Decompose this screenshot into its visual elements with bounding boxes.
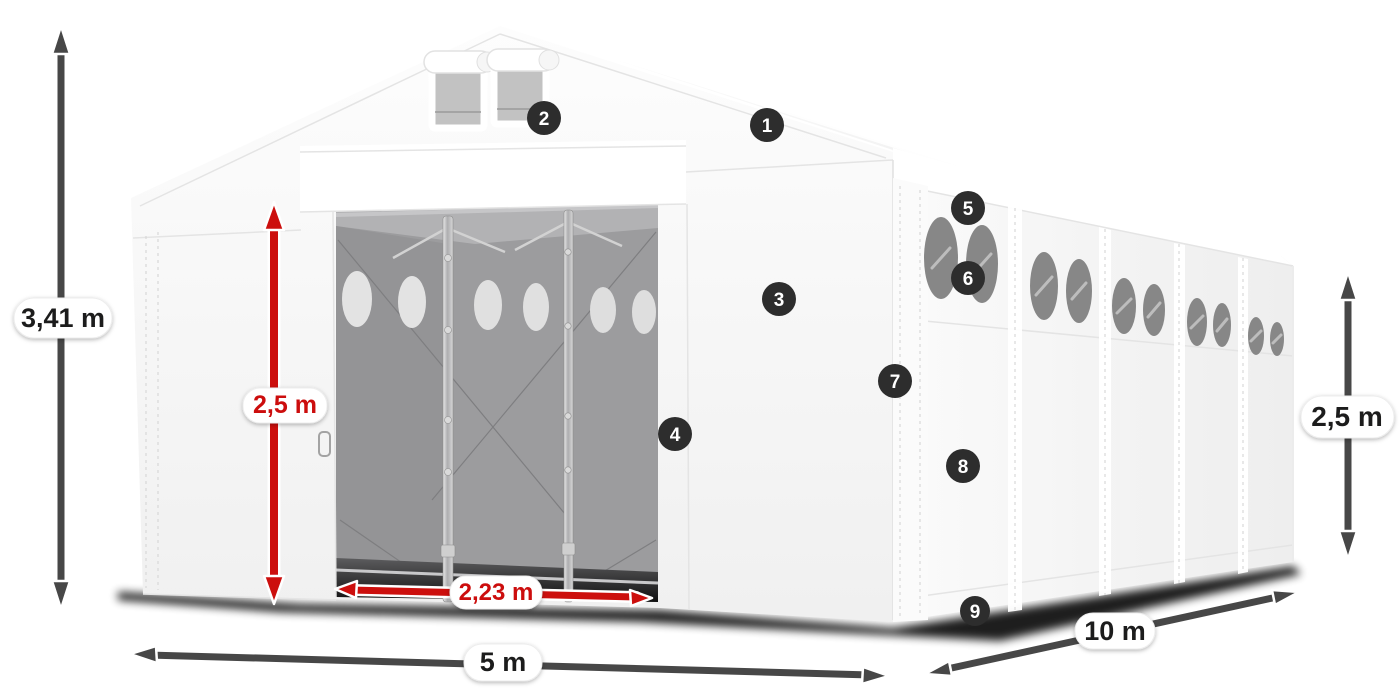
interior-window xyxy=(632,290,656,334)
marker-2-label: 2 xyxy=(539,109,550,130)
dimension-label-total-height: 3,41 m xyxy=(14,298,112,338)
dimension-label-side-length: 10 m xyxy=(1075,613,1155,649)
marker-3[interactable]: 3 xyxy=(762,282,796,316)
marker-7-label: 7 xyxy=(890,372,901,393)
side-strap xyxy=(1238,257,1248,574)
side-wall xyxy=(893,148,1293,622)
interior-window xyxy=(474,280,502,330)
side-strap xyxy=(1174,243,1185,584)
tent-interior xyxy=(336,198,658,602)
vent-pane xyxy=(432,70,484,128)
dimension-label-door-height: 2,5 m xyxy=(243,388,327,423)
interior-window xyxy=(342,271,372,327)
interior-window xyxy=(523,283,549,331)
marker-7[interactable]: 7 xyxy=(878,364,912,398)
marker-6-label: 6 xyxy=(963,269,974,290)
marker-1-label: 1 xyxy=(762,116,773,137)
marker-9-label: 9 xyxy=(970,602,981,623)
front-width-value: 5 m xyxy=(480,647,527,677)
marker-4[interactable]: 4 xyxy=(658,417,692,451)
vent-roll-cap xyxy=(539,50,559,70)
marker-1[interactable]: 1 xyxy=(750,108,784,142)
diagram-canvas: 3,41 m 2,5 m 2,23 m xyxy=(0,0,1400,700)
door-height-value: 2,5 m xyxy=(253,391,317,419)
marker-9[interactable]: 9 xyxy=(960,596,990,626)
side-strap xyxy=(1099,227,1111,596)
marker-8[interactable]: 8 xyxy=(946,449,980,483)
total-height-value: 3,41 m xyxy=(21,303,105,333)
marker-5-label: 5 xyxy=(963,199,974,220)
door-handle[interactable] xyxy=(319,432,330,456)
corner-post-band xyxy=(893,178,928,622)
side-length-value: 10 m xyxy=(1084,616,1146,646)
interior-pole-left xyxy=(441,216,455,602)
marker-8-label: 8 xyxy=(958,457,969,478)
tent-illustration xyxy=(118,22,1301,641)
marker-5[interactable]: 5 xyxy=(951,191,985,225)
marker-2[interactable]: 2 xyxy=(527,101,561,135)
door-header xyxy=(300,140,686,212)
tent-dimension-diagram: 3,41 m 2,5 m 2,23 m xyxy=(0,0,1400,700)
marker-3-label: 3 xyxy=(774,290,785,311)
interior-window xyxy=(398,276,426,328)
side-wall-height-value: 2,5 m xyxy=(1311,401,1383,432)
dimension-label-door-width: 2,23 m xyxy=(450,576,542,609)
interior-window xyxy=(590,287,616,333)
side-strap xyxy=(1008,206,1022,612)
marker-6[interactable]: 6 xyxy=(951,261,985,295)
dimension-label-front-width: 5 m xyxy=(464,644,542,681)
door-width-value: 2,23 m xyxy=(459,579,534,606)
marker-4-label: 4 xyxy=(670,425,681,446)
dimension-label-side-wall-height: 2,5 m xyxy=(1301,396,1394,438)
interior-pole-right xyxy=(562,210,575,602)
gable-vent-left xyxy=(424,51,497,128)
